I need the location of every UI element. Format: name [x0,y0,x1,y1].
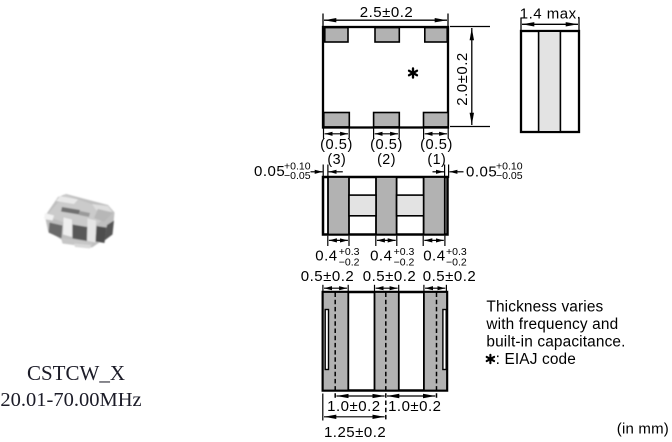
svg-text:(0.5): (0.5) [370,137,403,153]
svg-text:0.05: 0.05 [466,164,497,181]
svg-text:1.0±0.2: 1.0±0.2 [327,398,380,415]
svg-text:0.5±0.2: 0.5±0.2 [363,268,416,285]
svg-text:−0.05: −0.05 [284,170,311,182]
svg-text:Thickness varies: Thickness varies [486,298,603,315]
svg-text:: EIAJ code: : EIAJ code [496,351,576,368]
svg-text:with frequency and: with frequency and [485,316,618,333]
svg-text:(in mm): (in mm) [617,421,669,438]
svg-text:(0.5): (0.5) [420,137,453,153]
svg-text:(1): (1) [427,152,446,168]
svg-text:(0.5): (0.5) [320,137,353,153]
svg-text:−0.05: −0.05 [496,170,523,182]
svg-text:−0.2: −0.2 [394,257,415,269]
svg-text:1.25±0.2: 1.25±0.2 [324,424,386,441]
svg-text:1.4 max.: 1.4 max. [520,5,582,22]
svg-text:20.01-70.00MHz: 20.01-70.00MHz [0,389,141,411]
svg-text:1.0±0.2: 1.0±0.2 [388,398,441,415]
svg-text:0.05: 0.05 [254,163,285,180]
svg-text:−0.2: −0.2 [446,257,467,269]
svg-text:(2): (2) [377,152,396,168]
svg-text:0.5±0.2: 0.5±0.2 [423,268,476,285]
svg-text:0.5±0.2: 0.5±0.2 [301,268,354,285]
svg-text:2.0±0.2: 2.0±0.2 [454,52,471,105]
svg-text:built-in capacitance.: built-in capacitance. [486,333,625,350]
svg-text:2.5±0.2: 2.5±0.2 [360,4,413,21]
svg-text:−0.2: −0.2 [339,257,360,269]
svg-text:0.4: 0.4 [370,247,392,264]
svg-text:0.4: 0.4 [423,247,445,264]
svg-text:(3): (3) [327,152,346,168]
svg-text:0.4: 0.4 [315,247,337,264]
svg-text:CSTCW_X: CSTCW_X [27,361,125,385]
